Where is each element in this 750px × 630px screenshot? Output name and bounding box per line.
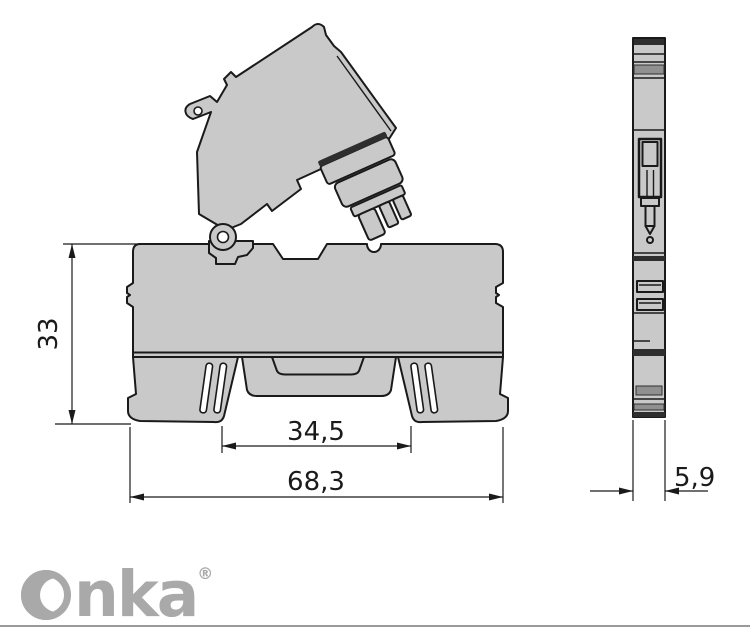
dimension-label-rail-width: 34,5: [287, 417, 345, 447]
end-tab-1: [637, 281, 663, 292]
latch-inner: [643, 142, 658, 166]
end-dark-band-2: [633, 349, 665, 356]
dimension-depth: 5,9: [590, 420, 715, 501]
logo-o-icon: [18, 564, 74, 624]
bottom-divider: [0, 625, 750, 627]
end-top-band: [634, 39, 664, 45]
end-dark-band-1: [633, 256, 665, 261]
din-tongue: [272, 357, 364, 375]
registered-mark-icon: ®: [197, 564, 213, 583]
end-tab-2: [637, 299, 663, 310]
hinge-pivot-hole: [218, 232, 229, 243]
end-mid-band-3: [634, 404, 664, 410]
latch-stem: [646, 206, 655, 226]
dimension-label-height: 33: [34, 317, 64, 350]
latch-hole: [647, 237, 653, 243]
fuse-lever-open: [185, 24, 423, 264]
terminal-base-body: [127, 244, 503, 357]
brand-logo: nka ®: [18, 562, 213, 624]
dimension-rail-width: 34,5: [222, 417, 411, 453]
end-mid-band-2: [636, 386, 662, 395]
dimension-label-overall-width: 68,3: [287, 467, 345, 497]
lever-tab-hole: [194, 107, 202, 115]
drawing-page: 33 34,5 68,3 5,9: [0, 0, 750, 630]
latch-crossbar: [641, 198, 659, 206]
end-bottom-band: [633, 412, 665, 417]
end-mid-band-1: [634, 65, 664, 74]
end-view: [633, 38, 665, 417]
technical-drawing: 33 34,5 68,3 5,9: [0, 0, 750, 630]
dimension-label-depth: 5,9: [674, 463, 715, 493]
side-view: [127, 24, 508, 422]
brand-text: nka: [74, 566, 197, 624]
